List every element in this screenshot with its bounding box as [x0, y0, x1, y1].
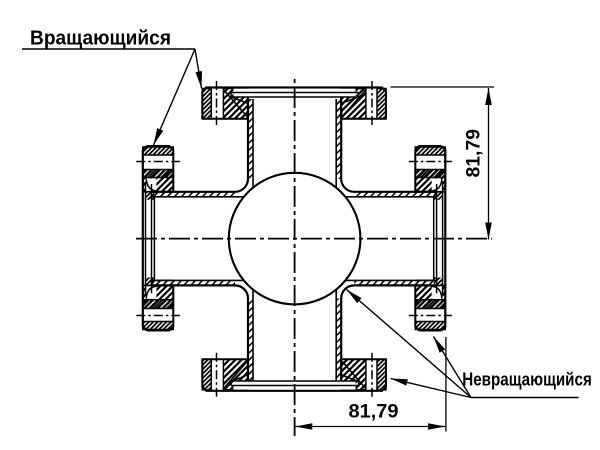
svg-text:Невращающийся: Невращающийся: [462, 369, 592, 390]
svg-text:Вращающийся: Вращающийся: [30, 28, 171, 50]
svg-text:81,79: 81,79: [349, 402, 399, 423]
svg-text:81,79: 81,79: [464, 129, 485, 178]
